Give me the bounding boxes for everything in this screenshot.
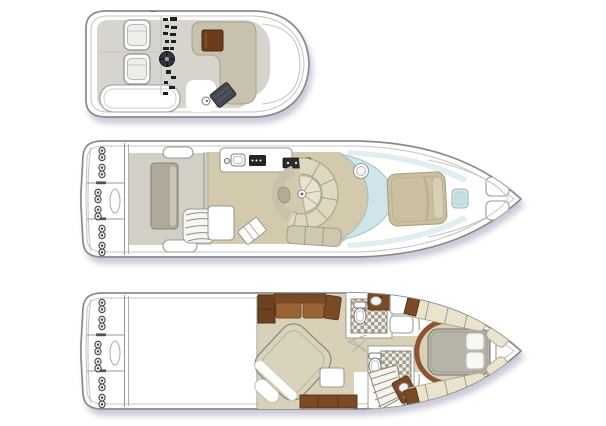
forward-island-berth [428, 329, 490, 375]
foredeck-sunpad [387, 172, 448, 227]
transom-seat [151, 163, 178, 229]
faucet-icon [224, 158, 229, 163]
yacht-deck-plans [0, 0, 606, 426]
nightstand [320, 368, 344, 387]
steering-wheel-icon [160, 52, 175, 67]
mid-cabin-dresser [300, 395, 357, 408]
cockpit-bench-top [163, 147, 193, 158]
flybridge-deck-plan [86, 6, 309, 117]
main-deck-plan [81, 141, 521, 257]
toilet-icon [354, 302, 366, 324]
pillow [466, 333, 484, 350]
pillow [466, 352, 484, 369]
helm-seat-right [124, 54, 150, 84]
salon-bench [286, 225, 341, 247]
helm-seat-left [124, 20, 150, 50]
deck-plan-drawing [0, 0, 606, 426]
deck-hatch-ring [354, 164, 369, 179]
galley [220, 148, 292, 172]
cooktop [249, 155, 266, 166]
cocktail-table [202, 30, 223, 51]
bow-hatch [452, 189, 468, 208]
salon-cabinet [208, 206, 234, 240]
vanity-sink [368, 293, 392, 310]
lower-deck-plan [81, 292, 521, 410]
